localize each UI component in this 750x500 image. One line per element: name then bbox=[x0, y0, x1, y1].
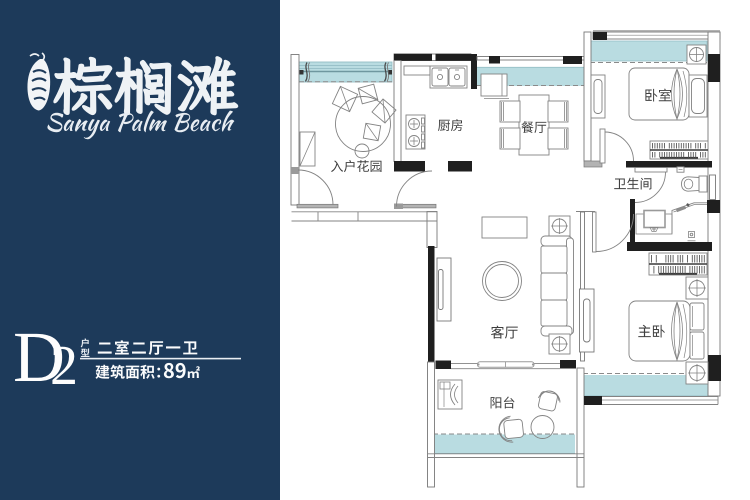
svg-text:2: 2 bbox=[50, 335, 78, 397]
